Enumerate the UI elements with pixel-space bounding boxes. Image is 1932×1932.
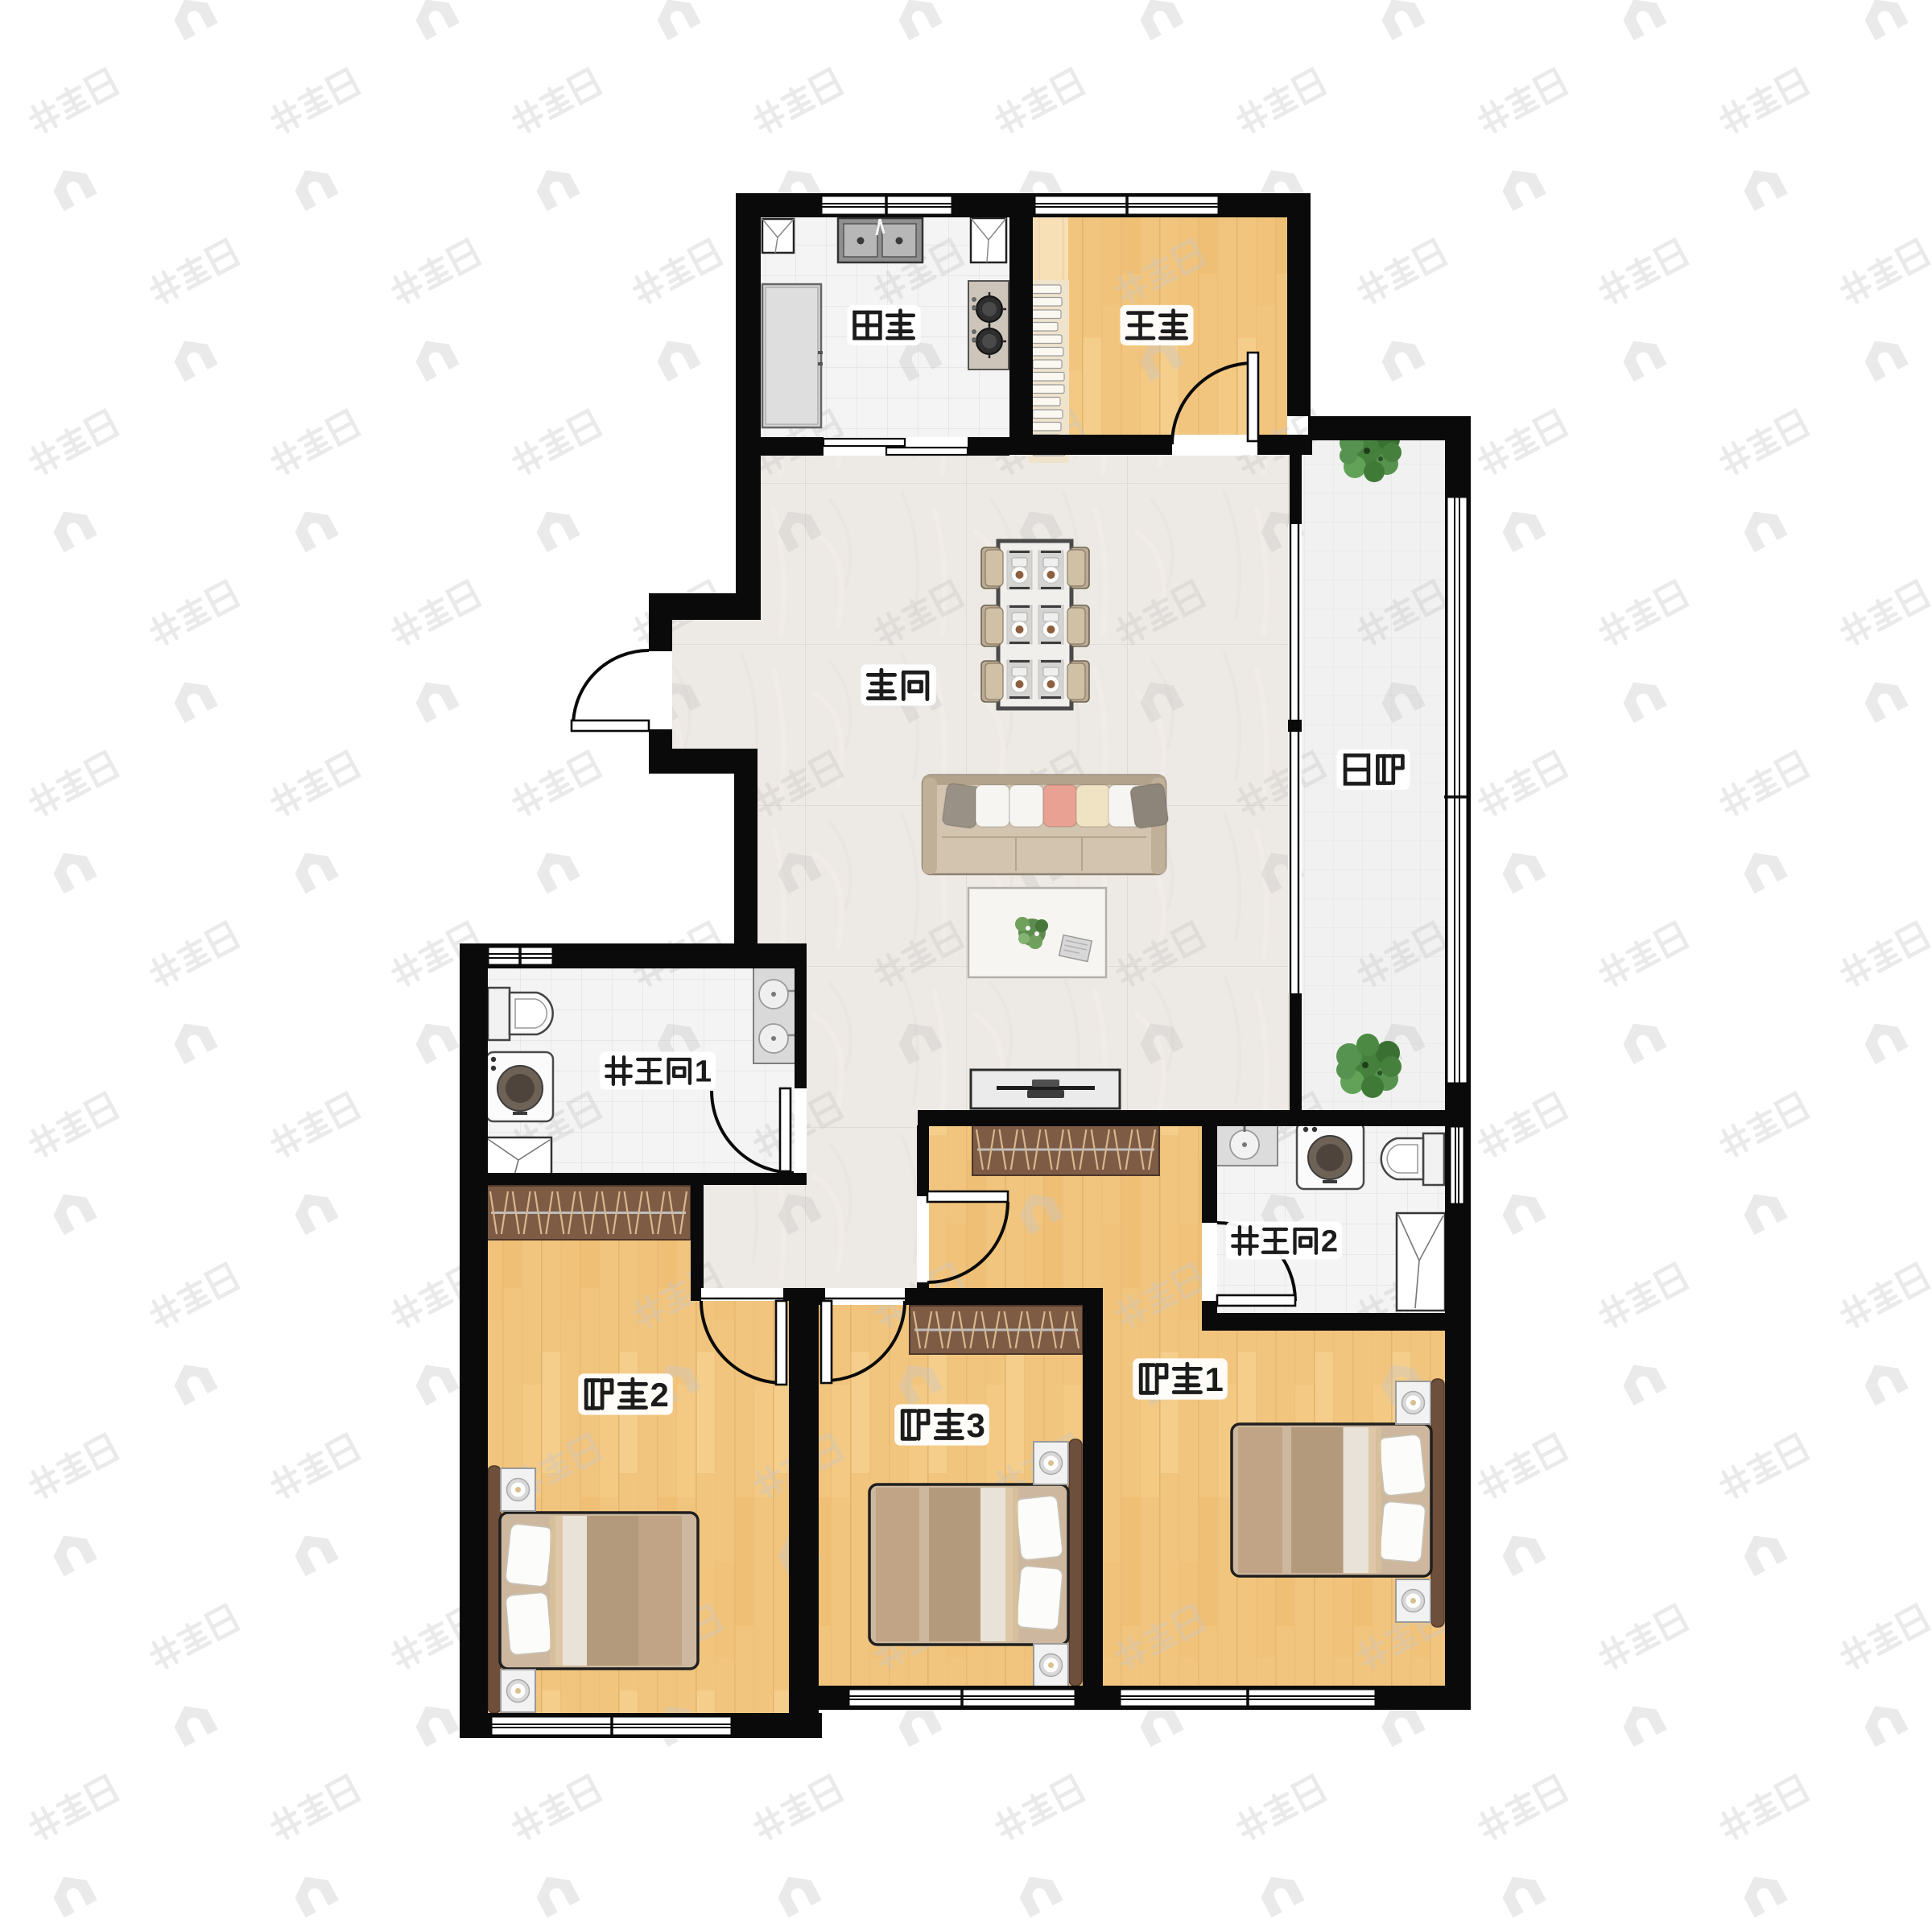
svg-text:1: 1 [1205, 1360, 1224, 1398]
svg-text:3: 3 [967, 1406, 985, 1444]
svg-text:2: 2 [650, 1376, 669, 1414]
svg-text:1: 1 [695, 1055, 712, 1088]
svg-text:2: 2 [1321, 1224, 1338, 1258]
